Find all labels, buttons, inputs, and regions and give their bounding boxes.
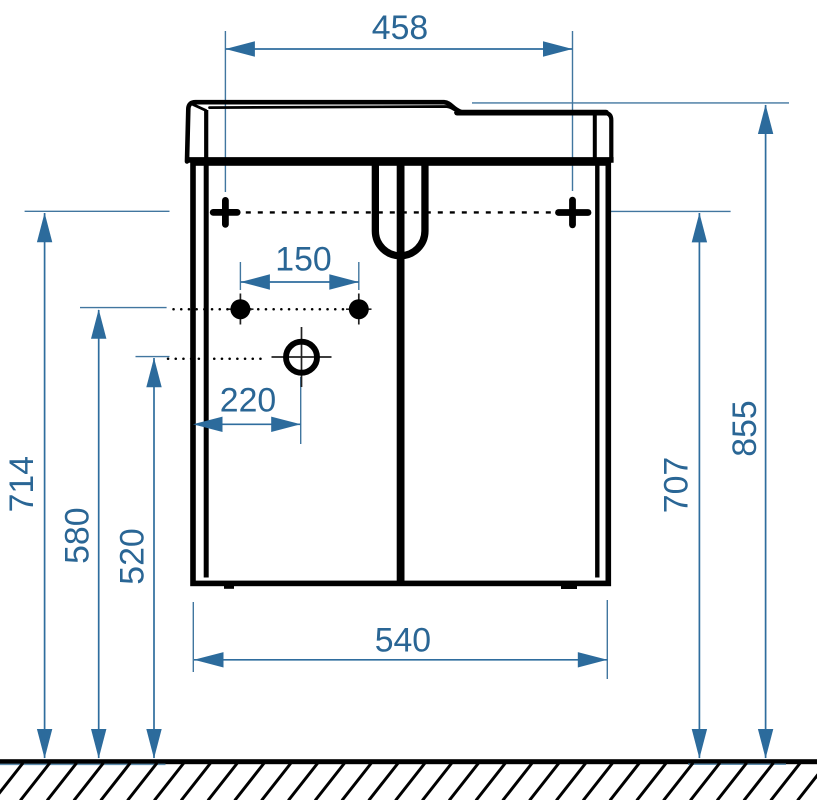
svg-text:458: 458 — [372, 9, 428, 47]
svg-text:714: 714 — [3, 456, 41, 512]
svg-text:707: 707 — [658, 457, 696, 513]
svg-text:220: 220 — [220, 381, 276, 419]
svg-text:540: 540 — [375, 621, 431, 659]
svg-text:150: 150 — [275, 241, 331, 279]
svg-text:520: 520 — [114, 528, 152, 584]
svg-text:580: 580 — [59, 508, 97, 564]
svg-text:855: 855 — [726, 400, 764, 456]
